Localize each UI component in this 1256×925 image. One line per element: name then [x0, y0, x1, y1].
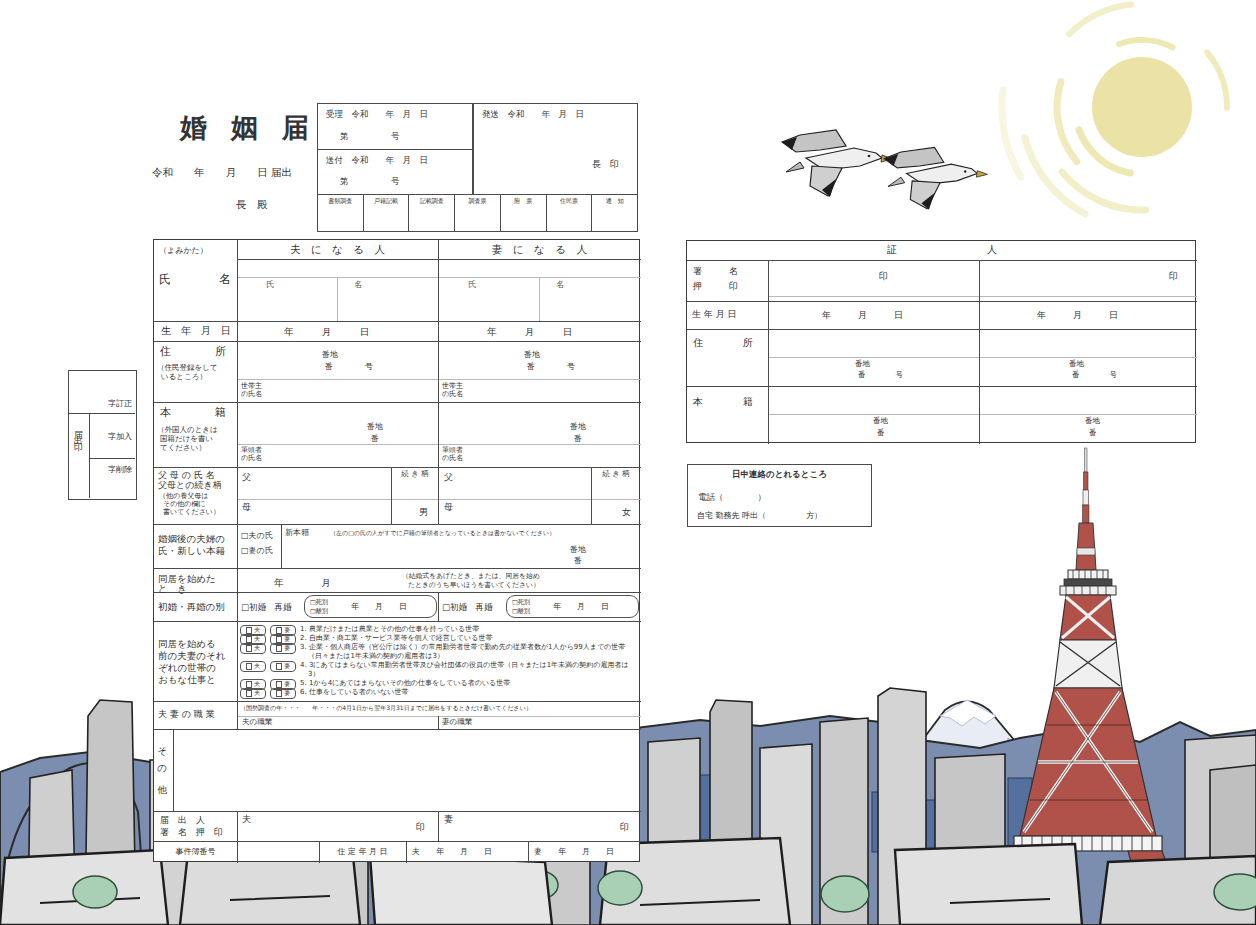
husband-signature-label: 夫 [242, 814, 251, 825]
divorced-checkbox[interactable]: □離別 [310, 607, 328, 614]
checkbox-label: 妻 [284, 689, 290, 698]
witness2-signature-field[interactable] [980, 261, 1160, 295]
forwarding-box: 送付 令和 年 月 日 第 号 [317, 149, 473, 196]
witness-table: 証 人 署 名 押 印 印 印 生 年 月 日 年 月 日 年 月 日 住 所 … [686, 240, 1196, 443]
householder-label: の氏名 [442, 390, 463, 398]
ban-label: 番 [371, 434, 379, 443]
cohabit-note: たときのうち早いほうを書いてください） [408, 581, 540, 589]
checkbox-icon [276, 636, 283, 643]
wife-work-checkbox[interactable]: 妻 [270, 643, 296, 654]
husband-surname-checkbox[interactable]: □夫の氏 [241, 531, 273, 540]
address-note: いるところ） [161, 373, 207, 382]
wife-column-header: 妻 に な る 人 [438, 243, 641, 255]
father-label: 父 [444, 472, 453, 483]
stamp-label: 附 票 [514, 197, 532, 231]
residence-fixed-date-label: 住 定 年 月 日 [319, 847, 406, 856]
wife-remarriage-box: □死別 □離別 年 月 日 [506, 595, 639, 618]
witness2-birthdate-field[interactable]: 年 月 日 [1037, 310, 1118, 321]
relationship-label: 続 き 柄 [593, 470, 639, 479]
seagulls-icon [782, 130, 987, 210]
parents-note: （他の養父母は [159, 492, 208, 500]
female-label: 女 [622, 507, 631, 518]
work-option-text: 3. 企業・個人商店等（官公庁は除く）の常用勤労者世帯で勤め先の従業者数が1人か… [300, 643, 637, 661]
cohabit-row-label: と き [158, 583, 187, 594]
tokyo-tower [994, 448, 1182, 902]
stamp-label: 住民票 [560, 197, 578, 231]
husband-birthdate-field[interactable]: 年 月 日 [284, 326, 370, 337]
seal-area-1[interactable] [90, 414, 135, 457]
work-option-text: 1. 農業だけまたは農業とその他の仕事を持っている世帯 [300, 625, 479, 634]
husband-first-marriage-checkbox[interactable]: □初婚 再婚 [241, 602, 292, 612]
household-work-row-label: ぞれの世帯の [158, 662, 216, 673]
father-label: 父 [242, 472, 251, 483]
stamp-label: 調査票 [469, 197, 487, 231]
householder-label: の氏名 [241, 390, 262, 398]
cohabit-date-field[interactable]: 年 月 [274, 577, 331, 588]
witness1-signature-field[interactable] [769, 261, 874, 295]
checkbox-label: 夫 [254, 662, 260, 671]
marriage-form-table: 夫 に な る 人 妻 に な る 人 （よみかた） 氏 名 氏 名 氏 名 生… [153, 239, 640, 862]
checkbox-icon [276, 663, 283, 670]
household-work-row-label: 前の夫妻のそれ [158, 650, 225, 661]
parents-note: 書いてください） [163, 508, 220, 516]
submitter-row-label: 署 名 押 印 [160, 827, 223, 838]
checkbox-label: 夫 [254, 689, 260, 698]
wife-birthdate-field[interactable]: 年 月 日 [487, 326, 573, 337]
case-number-label: 事件簿番号 [154, 847, 237, 856]
husband-signature-field[interactable] [254, 812, 409, 840]
checkbox-icon [276, 690, 283, 697]
wife-surname-checkbox[interactable]: □妻の氏 [241, 546, 273, 555]
new-surname-row-label: 氏・新しい本籍 [158, 545, 225, 556]
registrant-label: の氏名 [241, 454, 262, 462]
stamp-cell: 通 知 [591, 195, 637, 231]
checkbox-icon [246, 636, 253, 643]
marriage-type-row-label: 初婚・再婚の別 [158, 601, 225, 612]
stamp-label: 記載調査 [420, 197, 444, 231]
checkbox-label: 妻 [284, 644, 290, 653]
parents-row-label: 父母との続き柄 [158, 480, 222, 491]
checkbox-icon [276, 645, 283, 652]
witness1-birthdate-field[interactable]: 年 月 日 [822, 310, 903, 321]
household-work-row-label: おもな仕事と [158, 674, 216, 685]
household-work-row-label: 同居を始める [158, 638, 216, 649]
checkbox-icon [246, 690, 253, 697]
banchi-label: 番地 [367, 422, 383, 431]
male-label: 男 [419, 507, 428, 518]
banchi-label: 番地 [855, 360, 870, 369]
dispatch-box: 発送 令和 年 月 日 長 印 [473, 103, 638, 195]
page: 婚姻届 令和 年 月 日 届出 長 殿 受理 令和 年 月 日 第 号 送付 令… [0, 0, 1256, 925]
divorced-checkbox[interactable]: □離別 [512, 607, 530, 614]
case-number-field[interactable] [238, 842, 318, 862]
banchi-label: 番地 [873, 417, 888, 426]
checkbox-label: 夫 [254, 644, 260, 653]
householder-label: 世帯主 [241, 382, 262, 390]
mayor-seal-label: 長 印 [592, 159, 619, 170]
ban-label: 番 [574, 434, 582, 443]
ban-label: 番 [574, 556, 582, 565]
acceptance-date: 受理 令和 年 月 日 [326, 109, 428, 119]
checkbox-label: 妻 [284, 662, 290, 671]
witness-address-label: 住 所 [693, 337, 753, 349]
work-option-text: 2. 自由業・商工業・サービス業等を個人で経営している世帯 [300, 634, 492, 643]
husband-seal-label: 印 [416, 822, 425, 833]
ban-go-label: 番 号 [858, 371, 903, 380]
registrant-label: 筆頭者 [241, 446, 262, 454]
widowed-checkbox[interactable]: □死別 [310, 598, 328, 605]
occupation-note: （国勢調査の年・・・ 年・・・の4月1日から翌年3月31日までに届出をするときだ… [240, 704, 638, 711]
witness-birthdate-label: 生 年 月 日 [692, 309, 737, 320]
acceptance-number: 第 号 [340, 131, 400, 141]
husband-occupation-label: 夫の職業 [242, 718, 272, 727]
registrant-label: 筆頭者 [442, 446, 463, 454]
husband-residence-date: 夫 年 月 日 [412, 847, 492, 856]
work-option-row: 夫 妻 3. 企業・個人商店等（官公庁は除く）の常用勤労者世帯で勤め先の従業者数… [240, 643, 637, 661]
mother-label: 母 [444, 502, 453, 513]
checkbox-icon [246, 627, 253, 634]
submitter-row-label: 届 出 人 [160, 815, 205, 826]
occupation-row-label: 夫 妻 の 職 業 [158, 709, 215, 720]
forwarding-number: 第 号 [340, 176, 400, 186]
furigana-label: （よみかた） [159, 246, 208, 255]
witness-domicile-label: 本 籍 [693, 396, 753, 408]
new-domicile-label: 新本籍 [285, 528, 309, 537]
parents-note: その他の欄に [163, 500, 206, 508]
witness-seal-label: 押 印 [693, 281, 738, 292]
relationship-label: 続 き 柄 [393, 470, 437, 479]
new-surname-row-label: 婚姻後の夫婦の [158, 533, 225, 544]
stamp-cell: 戸籍記載 [363, 195, 409, 231]
dispatch-date: 発送 令和 年 月 日 [482, 109, 584, 119]
telephone-field[interactable]: 電話（ ） [698, 492, 766, 502]
witness1-seal: 印 [879, 271, 888, 282]
domicile-note: てください） [160, 444, 206, 453]
forwarding-date: 送付 令和 年 月 日 [326, 155, 428, 165]
wife-seal-label: 印 [620, 822, 629, 833]
witness-header: 証 人 [687, 244, 1197, 256]
husband-name-field[interactable] [238, 278, 437, 320]
submission-date-line: 令和 年 月 日 届出 [152, 166, 292, 178]
contact-title: 日中連絡のとれるところ [688, 469, 871, 479]
wife-signature-field[interactable] [456, 812, 611, 840]
work-option-text: 6. 仕事をしている者のいない世帯 [300, 688, 408, 697]
stamp-label: 通 知 [606, 197, 624, 231]
mayor-label: 長 殿 [236, 198, 268, 210]
acceptance-box: 受理 令和 年 月 日 第 号 [317, 103, 473, 150]
stamp-label: 戸籍記載 [374, 197, 398, 231]
wife-occupation-label: 妻の職業 [442, 718, 472, 727]
banchi-label: 番地 [1085, 417, 1100, 426]
work-option-text: 4. 3にあてはまらない常用勤労者世帯及び会社団体の役員の世帯（日々または1年未… [300, 661, 637, 679]
address-row-label: 住 所 [160, 346, 226, 359]
form-title: 婚姻届 [180, 112, 333, 144]
wife-first-marriage-checkbox[interactable]: □初婚 再婚 [442, 602, 493, 612]
banchi-label: 番地 [1069, 360, 1084, 369]
householder-label: 世帯主 [442, 382, 463, 390]
stamp-cell: 調査票 [454, 195, 500, 231]
correction-seal-box: 字訂正 字加入 字削除 届出印 [68, 370, 137, 500]
checkbox-icon [246, 681, 253, 688]
husband-work-checkbox[interactable]: 夫 [240, 661, 266, 672]
banchi-label: 番地 [570, 545, 586, 554]
contact-type-field[interactable]: 自宅 勤務先 呼出（ 方） [697, 511, 822, 520]
correction-label: 字訂正 [108, 398, 132, 409]
daytime-contact-box: 日中連絡のとれるところ 電話（ ） 自宅 勤務先 呼出（ 方） [687, 464, 872, 527]
ban-label: 番 [877, 429, 885, 438]
other-row-label: その他 [157, 740, 168, 786]
checkbox-icon [246, 645, 253, 652]
witness-sign-label: 署 名 [693, 266, 738, 277]
husband-work-checkbox[interactable]: 夫 [240, 643, 266, 654]
witness2-seal: 印 [1169, 271, 1178, 282]
work-option-text: 5. 1から4にあてはまらないその他の仕事をしている者のいる世帯 [300, 679, 510, 688]
stamp-cell: 住民票 [546, 195, 592, 231]
work-option-row: 夫 妻 6. 仕事をしている者のいない世帯 [240, 688, 637, 699]
cohabit-note: （結婚式をあげたとき、または、同居を始め [402, 572, 540, 580]
name-row-label: 氏 名 [159, 272, 231, 286]
registrant-label: の氏名 [442, 454, 463, 462]
ban-go-label: 番 号 [1072, 371, 1117, 380]
husband-work-checkbox[interactable]: 夫 [240, 688, 266, 699]
husband-column-header: 夫 に な る 人 [237, 243, 438, 255]
new-domicile-note: （左の□の氏の人がすでに戸籍の筆頭者となっているときは書かないでください） [330, 529, 635, 536]
seal-area-2[interactable] [90, 459, 135, 498]
remarriage-date-field[interactable]: 年 月 日 [351, 602, 407, 611]
checkbox-icon [276, 627, 283, 634]
domicile-row-label: 本 籍 [160, 407, 226, 420]
widowed-checkbox[interactable]: □死別 [512, 598, 530, 605]
birthdate-row-label: 生 年 月 日 [161, 325, 231, 337]
notification-seal-label: 届出印 [73, 423, 84, 441]
ban-label: 番 [1089, 429, 1097, 438]
wife-name-field[interactable] [439, 278, 640, 320]
mother-label: 母 [242, 502, 251, 513]
husband-address-field[interactable] [238, 342, 437, 378]
remarriage-date-field[interactable]: 年 月 日 [553, 602, 609, 611]
stamp-label: 書類調査 [328, 197, 352, 231]
wife-work-checkbox[interactable]: 妻 [270, 661, 296, 672]
wife-work-checkbox[interactable]: 妻 [270, 688, 296, 699]
wife-signature-label: 妻 [444, 814, 453, 825]
husband-remarriage-box: □死別 □離別 年 月 日 [304, 595, 437, 618]
banchi-label: 番地 [570, 422, 586, 431]
other-field[interactable] [174, 730, 640, 810]
wife-residence-date: 妻 年 月 日 [534, 847, 614, 856]
new-domicile-field[interactable] [282, 540, 562, 566]
checkbox-icon [246, 663, 253, 670]
stamp-cell: 記載調査 [408, 195, 454, 231]
office-stamps-row: 書類調査 戸籍記載 記載調査 調査票 附 票 住民票 通 知 [317, 194, 638, 232]
stamp-cell: 書類調査 [318, 195, 363, 231]
wife-address-field[interactable] [439, 342, 640, 378]
work-option-row: 夫 妻 4. 3にあてはまらない常用勤労者世帯及び会社団体の役員の世帯（日々また… [240, 661, 637, 679]
checkbox-icon [276, 681, 283, 688]
stamp-cell: 附 票 [500, 195, 546, 231]
